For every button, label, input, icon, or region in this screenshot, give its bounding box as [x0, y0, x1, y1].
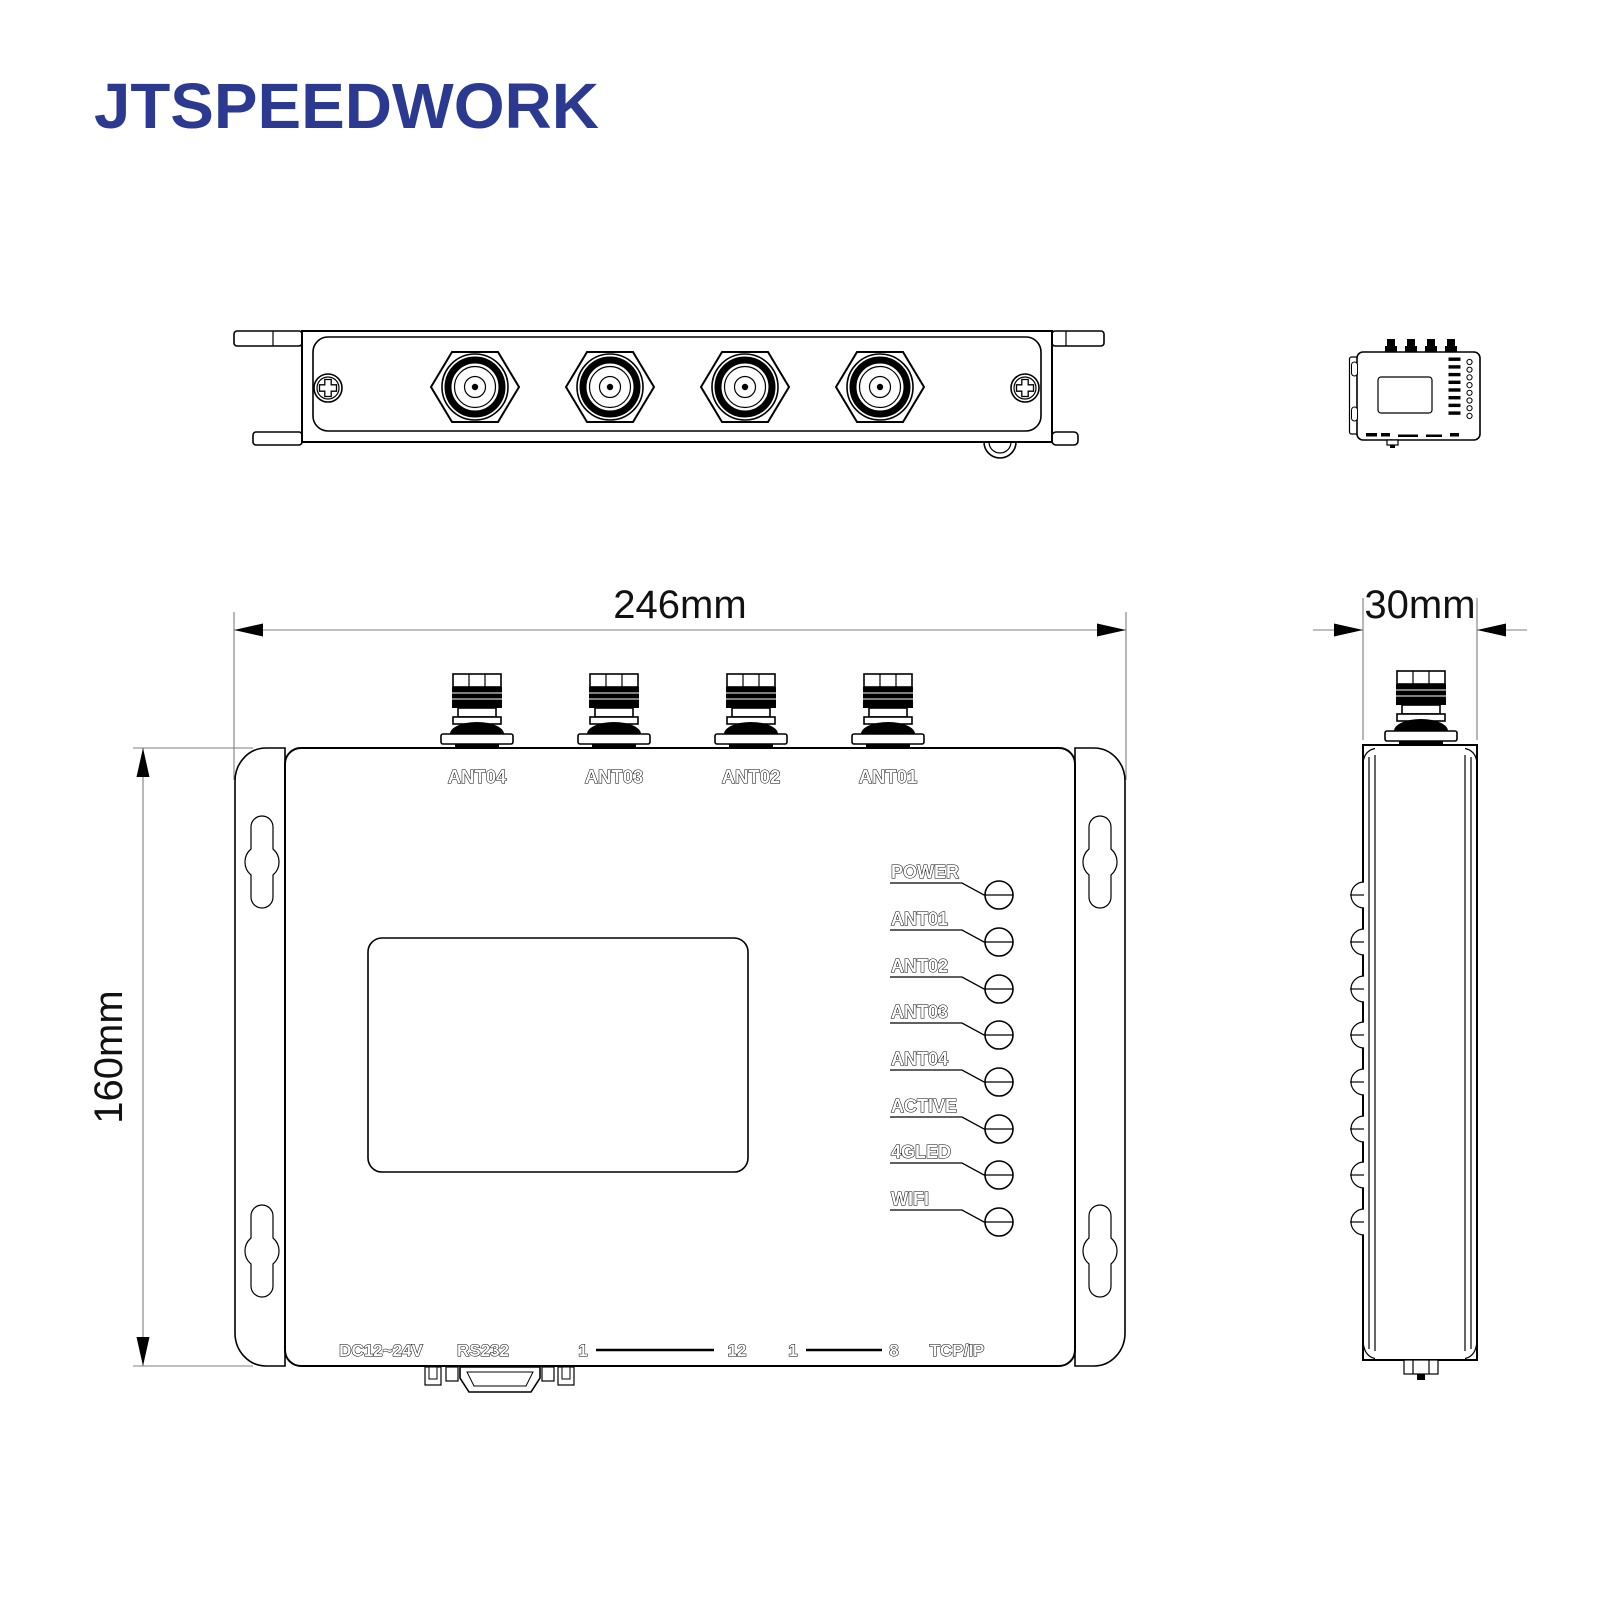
thumbnail-keyhole-top: [1352, 362, 1358, 376]
width-dimension-label: 246mm: [613, 583, 746, 627]
antenna-label-ant04: ANT04: [448, 766, 507, 787]
front-antenna-connector-3: [578, 674, 650, 748]
led-label-ant02: ANT02: [891, 956, 948, 976]
front-label-area: [368, 938, 748, 1172]
port-label-io-to: 12: [728, 1341, 747, 1360]
led-label-ant01: ANT01: [891, 909, 948, 929]
arrow-top: [137, 748, 150, 777]
drawing-svg: JTSPEEDWORK: [0, 0, 1601, 1601]
technical-drawing-canvas: JTSPEEDWORK: [0, 0, 1601, 1601]
top-view-face-panel: [313, 337, 1041, 431]
side-antenna-connector: [1385, 671, 1457, 745]
front-antenna-connector-4: [441, 674, 513, 748]
top-view-screw-left: [314, 374, 342, 402]
antenna-label-ant02: ANT02: [722, 766, 781, 787]
top-view-screw-right: [1011, 374, 1039, 402]
dimension-height: 160mm: [87, 748, 253, 1366]
thumbnail-antennas: [1385, 339, 1457, 352]
led-label-active: ACTIVE: [891, 1096, 957, 1116]
top-view-flange-bottom-right: [1052, 432, 1078, 445]
led-label-power: POWER: [891, 862, 959, 882]
top-view-bump-inner: [989, 442, 1011, 453]
arrow-bottom: [137, 1337, 150, 1366]
led-label-ant03: ANT03: [891, 1002, 948, 1022]
thumbnail-keyhole-bottom: [1352, 407, 1358, 421]
led-label-4gled: 4GLED: [891, 1142, 951, 1162]
db9-connector: [425, 1367, 574, 1392]
height-dimension-label: 160mm: [87, 990, 131, 1123]
top-view-flange-top-right: [1052, 331, 1104, 346]
port-label-rs232: RS232: [457, 1341, 509, 1360]
front-view: ANT04 ANT03 ANT02 ANT01 POWER ANT01 ANT0…: [235, 674, 1125, 1392]
side-bottom-connector: [1404, 1360, 1438, 1380]
brand-logo: JTSPEEDWORK: [94, 70, 599, 142]
arrow-left: [234, 624, 263, 637]
front-antenna-connector-1: [852, 674, 924, 748]
led-label-ant04: ANT04: [891, 1049, 948, 1069]
led-label-wifi: WIFI: [891, 1189, 929, 1209]
port-label-relay-to: 8: [889, 1341, 898, 1360]
antenna-label-ant01: ANT01: [859, 766, 918, 787]
side-view: [1350, 671, 1477, 1380]
arrow-inward-right: [1477, 624, 1506, 637]
port-label-power: DC12~24V: [339, 1341, 423, 1360]
port-label-relay-from: 1: [788, 1341, 797, 1360]
arrow-inward-left: [1334, 624, 1363, 637]
arrow-right: [1097, 624, 1126, 637]
port-label-io-from: 1: [578, 1341, 587, 1360]
depth-dimension-label: 30mm: [1364, 583, 1475, 627]
side-body: [1363, 745, 1477, 1360]
top-view-flange-bottom-left: [253, 432, 302, 445]
thumbnail-front-view: [1350, 339, 1481, 448]
antenna-label-ant03: ANT03: [585, 766, 644, 787]
front-antenna-connector-2: [715, 674, 787, 748]
thumbnail-label-area: [1378, 377, 1432, 413]
port-label-tcpip: TCP/IP: [930, 1341, 985, 1360]
side-led-bumps: [1350, 882, 1364, 1235]
top-view-flange-top-left: [234, 331, 302, 346]
top-view: [234, 331, 1104, 458]
